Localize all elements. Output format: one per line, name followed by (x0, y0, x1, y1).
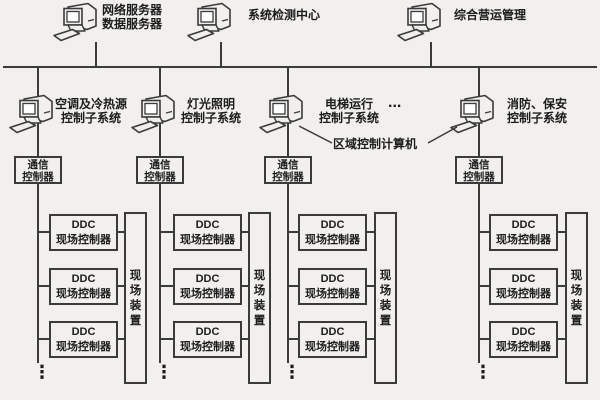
connector-stub (558, 285, 565, 287)
connector-stub (38, 285, 49, 287)
connector-stub (367, 338, 374, 340)
connector-stub (367, 285, 374, 287)
subsystem-label: 电梯运行 控制子系统 (312, 97, 386, 125)
connector-stub (288, 338, 298, 340)
ddc-controller-box: DDC 现场控制器 (298, 321, 367, 358)
subsystem-label-line: 消防、保安 (496, 97, 578, 111)
ddc-controller-box: DDC 现场控制器 (49, 268, 118, 305)
ddc-controller-box: DDC 现场控制器 (489, 268, 558, 305)
subsystem-label-line: 控制子系统 (312, 111, 386, 125)
connector-stub (288, 285, 298, 287)
column-line (37, 184, 39, 363)
comm-controller-box: 通信 控制器 (136, 156, 184, 184)
ddc-controller-box: DDC 现场控制器 (49, 321, 118, 358)
ddc-controller-box: DDC 现场控制器 (173, 268, 242, 305)
continuation-dots: ⋮ (155, 366, 173, 378)
ddc-controller-box: DDC 现场控制器 (298, 268, 367, 305)
subsystem-label-line: 电梯运行 (312, 97, 386, 111)
field-device-box: 现 场 装 置 (124, 212, 147, 384)
column-line (478, 184, 480, 363)
field-device-box: 现 场 装 置 (248, 212, 271, 384)
comm-controller-box: 通信 控制器 (455, 156, 503, 184)
connector-stub (558, 338, 565, 340)
continuation-dots: ⋮ (33, 366, 51, 378)
computer-icon (258, 94, 306, 140)
ddc-controller-box: DDC 现场控制器 (173, 321, 242, 358)
ddc-controller-box: DDC 现场控制器 (173, 214, 242, 251)
subsystem-label-line: 空调及冷热源 (48, 97, 134, 111)
workstation-label: 综合营运管理 (454, 8, 526, 22)
connector-stub (38, 231, 49, 233)
connector-stub (38, 338, 49, 340)
subsystem-label-line: 控制子系统 (48, 111, 134, 125)
connector-stub (367, 231, 374, 233)
workstation-label-line: 数据服务器 (102, 17, 162, 31)
connector-stub (160, 285, 173, 287)
connector-stub (288, 231, 298, 233)
workstation-label-line: 网络服务器 (102, 3, 162, 17)
workstation-label-line: 综合营运管理 (454, 8, 526, 22)
connector-stub (558, 231, 565, 233)
computer-icon (449, 94, 497, 140)
column-line (159, 184, 161, 363)
subsystem-label-line: 控制子系统 (496, 111, 578, 125)
field-device-box: 现 场 装 置 (565, 212, 588, 384)
comm-controller-box: 通信 控制器 (14, 156, 62, 184)
connector-stub (479, 231, 489, 233)
workstation-label: 网络服务器 数据服务器 (102, 3, 162, 31)
connector-stub (160, 338, 173, 340)
connector-stub (160, 231, 173, 233)
more-subsystems-ellipsis: ... (388, 94, 401, 112)
computer-icon (186, 2, 234, 48)
computer-icon (130, 94, 178, 140)
column-line (287, 184, 289, 363)
area-control-computer-label: 区域控制计算机 (333, 137, 417, 151)
computer-icon (396, 2, 444, 48)
subsystem-label: 消防、保安 控制子系统 (496, 97, 578, 125)
continuation-dots: ⋮ (283, 366, 301, 378)
workstation-label: 系统检测中心 (248, 8, 320, 22)
computer-icon (52, 2, 100, 48)
ddc-controller-box: DDC 现场控制器 (49, 214, 118, 251)
continuation-dots: ⋮ (474, 366, 492, 378)
subsystem-label-line: 灯光照明 (174, 97, 248, 111)
connector-stub (479, 338, 489, 340)
ddc-controller-box: DDC 现场控制器 (298, 214, 367, 251)
workstation-label-line: 系统检测中心 (248, 8, 320, 22)
comm-controller-box: 通信 控制器 (264, 156, 312, 184)
subsystem-label-line: 控制子系统 (174, 111, 248, 125)
connector-stub (479, 285, 489, 287)
ddc-controller-box: DDC 现场控制器 (489, 321, 558, 358)
subsystem-label: 灯光照明 控制子系统 (174, 97, 248, 125)
backbone-bus-line (3, 66, 597, 68)
field-device-box: 现 场 装 置 (374, 212, 397, 384)
bas-architecture-diagram: 网络服务器 数据服务器 系统检测中心 综合营运管理 空调及冷热源 控制子系统 灯… (0, 0, 600, 400)
ddc-controller-box: DDC 现场控制器 (489, 214, 558, 251)
subsystem-label: 空调及冷热源 控制子系统 (48, 97, 134, 125)
